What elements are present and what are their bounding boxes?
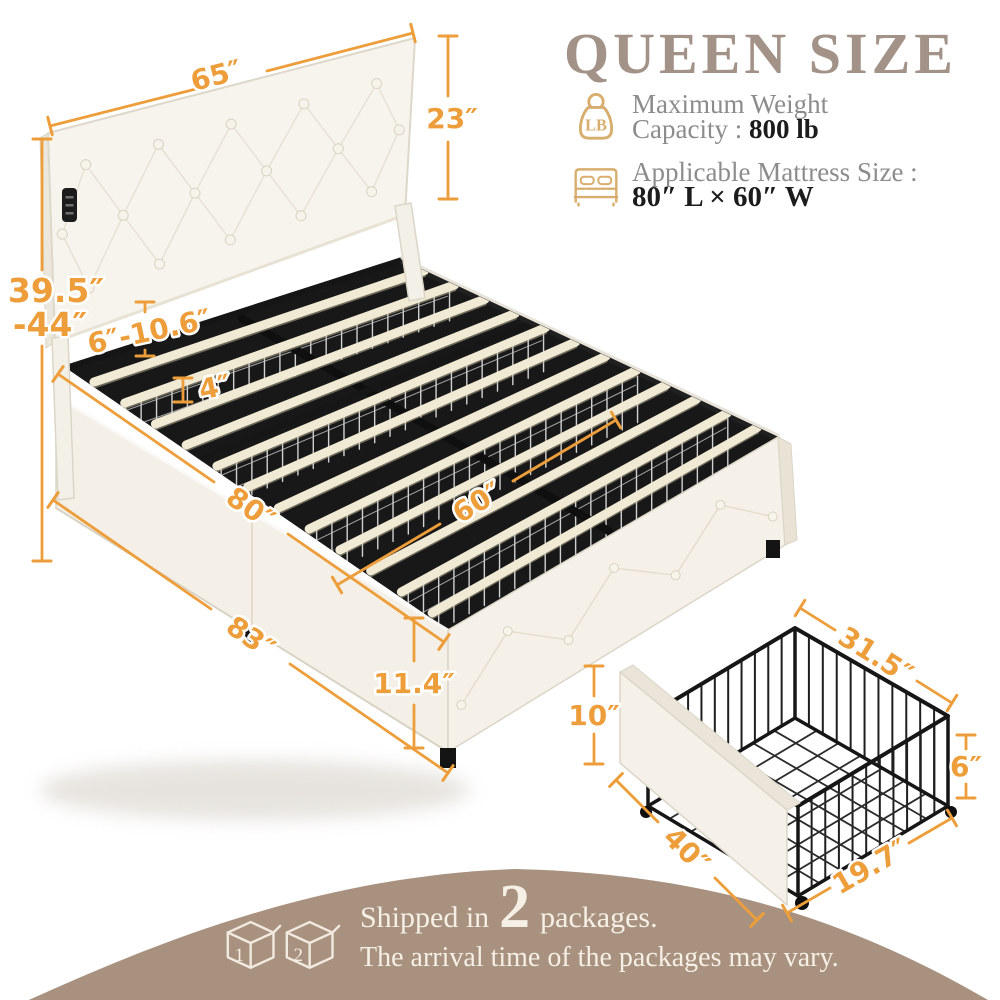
shipping-note: 1 2 Shipped in2packages. The arrival tim… xyxy=(224,896,839,974)
weight-lb-icon: LB xyxy=(572,92,620,144)
package-count: 2 xyxy=(499,873,530,941)
bed-icon xyxy=(572,160,620,212)
product-infographic: { "title": "QUEEN SIZE", "features": { "… xyxy=(0,0,1000,1000)
dim-label-floor-height-line2: -44″ xyxy=(13,305,87,344)
dim-label-headboard-height: 23″ xyxy=(426,102,477,135)
weight-icon-text: LB xyxy=(585,115,607,134)
feature-mattress-size: Applicable Mattress Size : 80″ L × 60″ W xyxy=(572,160,918,212)
dim-label-drawer-depth: 31.5″ xyxy=(832,620,919,691)
shipped-suffix: packages. xyxy=(540,901,657,934)
box2-number: 2 xyxy=(293,945,303,966)
dim-label-drawer-basket-height: 6″ xyxy=(950,750,982,783)
weight-label-line2: Capacity : 800 lb xyxy=(632,117,828,142)
floor-shadow xyxy=(40,760,470,820)
page-title: QUEEN SIZE xyxy=(564,20,957,87)
mattress-size-value: 80″ L × 60″ W xyxy=(632,185,918,210)
bed-diagram: 65″ 23″ 39.5″ -44″ 6″-10.6″ 4″ 80″ 60″ 8… xyxy=(0,0,1000,1000)
dim-label-slat-spacing: 4″ xyxy=(196,368,234,407)
box1-number: 1 xyxy=(234,945,244,966)
package-boxes-icon: 1 2 xyxy=(224,912,342,974)
feature-weight-capacity: LB Maximum Weight Capacity : 800 lb xyxy=(572,92,828,144)
shipped-line: Shipped in2packages. xyxy=(360,896,839,940)
bed-frame xyxy=(40,38,797,768)
dim-label-drawer-front-height: 10″ xyxy=(568,699,619,732)
shipped-prefix: Shipped in xyxy=(360,901,489,934)
arrival-note: The arrival time of the packages may var… xyxy=(360,942,839,974)
dim-label-base-height: 11.4″ xyxy=(373,667,455,700)
weight-capacity-label: Capacity : xyxy=(632,114,742,144)
weight-capacity-value: 800 lb xyxy=(749,114,819,144)
